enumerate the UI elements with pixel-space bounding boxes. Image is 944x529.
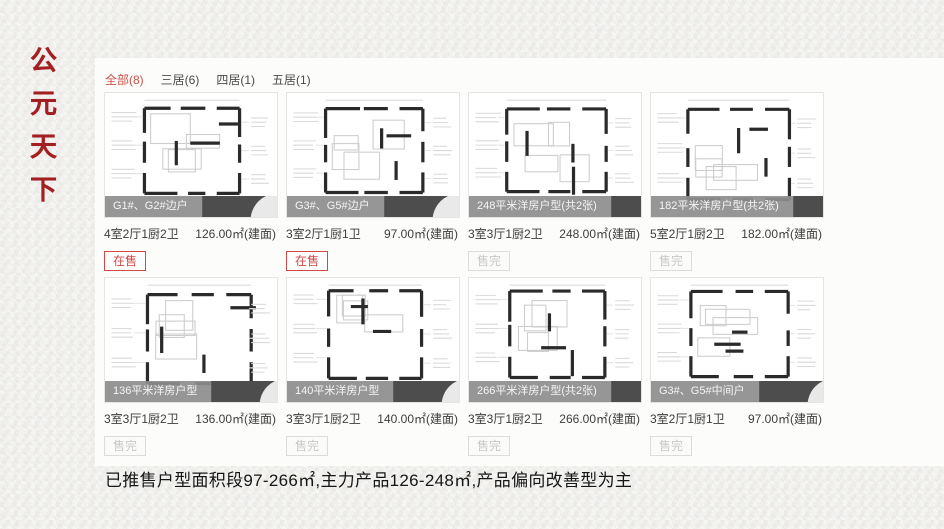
tab-four-room[interactable]: 四居(1) (216, 71, 255, 88)
floorplan-title: G1#、G2#边户 (113, 196, 188, 217)
floorplan-card[interactable]: G1#、G2#边户 4室2厅1厨2卫 126.00㎡(建面) 在售 (104, 92, 278, 264)
layout-spec: 3室3厅1厨2卫 (468, 410, 543, 427)
status-badge: 在售 (286, 251, 328, 271)
spec-row: 3室3厅1厨2卫 136.00㎡(建面) (104, 410, 276, 427)
tab-three-room[interactable]: 三居(6) (161, 71, 200, 88)
layout-spec: 3室2厅1厨1卫 (286, 225, 361, 242)
spec-row: 5室2厅1厨2卫 182.00㎡(建面) (650, 225, 822, 242)
status-badge: 售完 (468, 436, 510, 456)
area-spec: 248.00㎡(建面) (559, 225, 640, 242)
spec-row: 3室3厅1厨2卫 248.00㎡(建面) (468, 225, 640, 242)
spec-row: 3室3厅1厨2卫 140.00㎡(建面) (286, 410, 458, 427)
floorplan-image-wrap[interactable]: G3#、G5#中间户 (650, 277, 824, 403)
floorplan-card[interactable]: 248平米洋房户型(共2张) 3室3厅1厨2卫 248.00㎡(建面) 售完 (468, 92, 642, 264)
layout-spec: 3室3厅1厨2卫 (286, 410, 361, 427)
floorplan-card[interactable]: 140平米洋房户型 3室3厅1厨2卫 140.00㎡(建面) 售完 (286, 277, 460, 449)
spec-row: 3室3厅1厨2卫 266.00㎡(建面) (468, 410, 640, 427)
floorplan-title: G3#、G5#边户 (295, 196, 370, 217)
floorplan-title: G3#、G5#中间户 (659, 381, 745, 402)
floorplan-image-wrap[interactable]: 136平米洋房户型 (104, 277, 278, 403)
floorplan-title-bar: G3#、G5#中间户 (651, 381, 823, 402)
floorplan-image-wrap[interactable]: 182平米洋房户型(共2张) (650, 92, 824, 218)
area-spec: 140.00㎡(建面) (377, 410, 458, 427)
layout-spec: 5室2厅1厨2卫 (650, 225, 725, 242)
area-spec: 182.00㎡(建面) (741, 225, 822, 242)
floorplan-title: 140平米洋房户型 (295, 381, 379, 402)
area-spec: 97.00㎡(建面) (384, 225, 458, 242)
floorplan-image-wrap[interactable]: 248平米洋房户型(共2张) (468, 92, 642, 218)
camera-icon (383, 381, 459, 402)
floorplan-image-wrap[interactable]: 266平米洋房户型(共2张) (468, 277, 642, 403)
spec-row: 3室2厅1厨1卫 97.00㎡(建面) (286, 225, 458, 242)
camera-icon (192, 196, 277, 217)
brand-title: 公 元 天 下 (30, 40, 57, 212)
floorplan-title-bar: 182平米洋房户型(共2张) (651, 196, 823, 217)
camera-icon (783, 196, 823, 217)
brand-char: 公 (30, 40, 57, 83)
floorplan-card[interactable]: G3#、G5#中间户 3室2厅1厨1卫 97.00㎡(建面) 售完 (650, 277, 824, 449)
camera-icon (601, 381, 641, 402)
status-badge: 售完 (286, 436, 328, 456)
floorplan-title-bar: 136平米洋房户型 (105, 381, 277, 402)
status-badge: 售完 (650, 436, 692, 456)
brand-char: 元 (30, 83, 57, 126)
page: 公 元 天 下 全部(8) 三居(6) 四居(1) 五居(1) G1#、G2#边… (0, 0, 944, 529)
area-spec: 266.00㎡(建面) (559, 410, 640, 427)
tab-all[interactable]: 全部(8) (105, 71, 144, 88)
camera-icon (601, 196, 641, 217)
spec-row: 3室2厅1厨1卫 97.00㎡(建面) (650, 410, 822, 427)
area-spec: 97.00㎡(建面) (748, 410, 822, 427)
layout-spec: 3室3厅1厨2卫 (104, 410, 179, 427)
floorplan-card[interactable]: 266平米洋房户型(共2张) 3室3厅1厨2卫 266.00㎡(建面) 售完 (468, 277, 642, 449)
floor-filter-tabs: 全部(8) 三居(6) 四居(1) 五居(1) (105, 71, 311, 88)
summary-text: 已推售户型面积段97-266㎡,主力产品126-248㎡,产品偏向改善型为主 (105, 466, 632, 491)
floorplan-grid: G1#、G2#边户 4室2厅1厨2卫 126.00㎡(建面) 在售 G3#、G5… (104, 92, 824, 449)
spec-row: 4室2厅1厨2卫 126.00㎡(建面) (104, 225, 276, 242)
floorplan-image-wrap[interactable]: 140平米洋房户型 (286, 277, 460, 403)
floorplan-title-bar: G3#、G5#边户 (287, 196, 459, 217)
status-badge: 售完 (104, 436, 146, 456)
floorplan-title-bar: 140平米洋房户型 (287, 381, 459, 402)
floorplan-card[interactable]: 182平米洋房户型(共2张) 5室2厅1厨2卫 182.00㎡(建面) 售完 (650, 92, 824, 264)
floorplan-title-bar: 248平米洋房户型(共2张) (469, 196, 641, 217)
floorplan-title: 182平米洋房户型(共2张) (659, 196, 779, 217)
floorplan-title: 248平米洋房户型(共2张) (477, 196, 597, 217)
brand-char: 天 (30, 126, 57, 169)
layout-spec: 3室3厅1厨2卫 (468, 225, 543, 242)
status-badge: 售完 (468, 251, 510, 271)
floorplan-title: 266平米洋房户型(共2张) (477, 381, 597, 402)
floorplan-title: 136平米洋房户型 (113, 381, 197, 402)
floorplan-card[interactable]: G3#、G5#边户 3室2厅1厨1卫 97.00㎡(建面) 在售 (286, 92, 460, 264)
camera-icon (374, 196, 459, 217)
camera-icon (201, 381, 277, 402)
status-badge: 售完 (650, 251, 692, 271)
layout-spec: 4室2厅1厨2卫 (104, 225, 179, 242)
floorplan-title-bar: G1#、G2#边户 (105, 196, 277, 217)
floorplan-title-bar: 266平米洋房户型(共2张) (469, 381, 641, 402)
floorplan-image-wrap[interactable]: G1#、G2#边户 (104, 92, 278, 218)
floorplan-image-wrap[interactable]: G3#、G5#边户 (286, 92, 460, 218)
brand-char: 下 (30, 169, 57, 212)
status-badge: 在售 (104, 251, 146, 271)
tab-five-room[interactable]: 五居(1) (272, 71, 311, 88)
camera-icon (749, 381, 823, 402)
area-spec: 126.00㎡(建面) (195, 225, 276, 242)
floorplan-card[interactable]: 136平米洋房户型 3室3厅1厨2卫 136.00㎡(建面) 售完 (104, 277, 278, 449)
layout-spec: 3室2厅1厨1卫 (650, 410, 725, 427)
area-spec: 136.00㎡(建面) (195, 410, 276, 427)
